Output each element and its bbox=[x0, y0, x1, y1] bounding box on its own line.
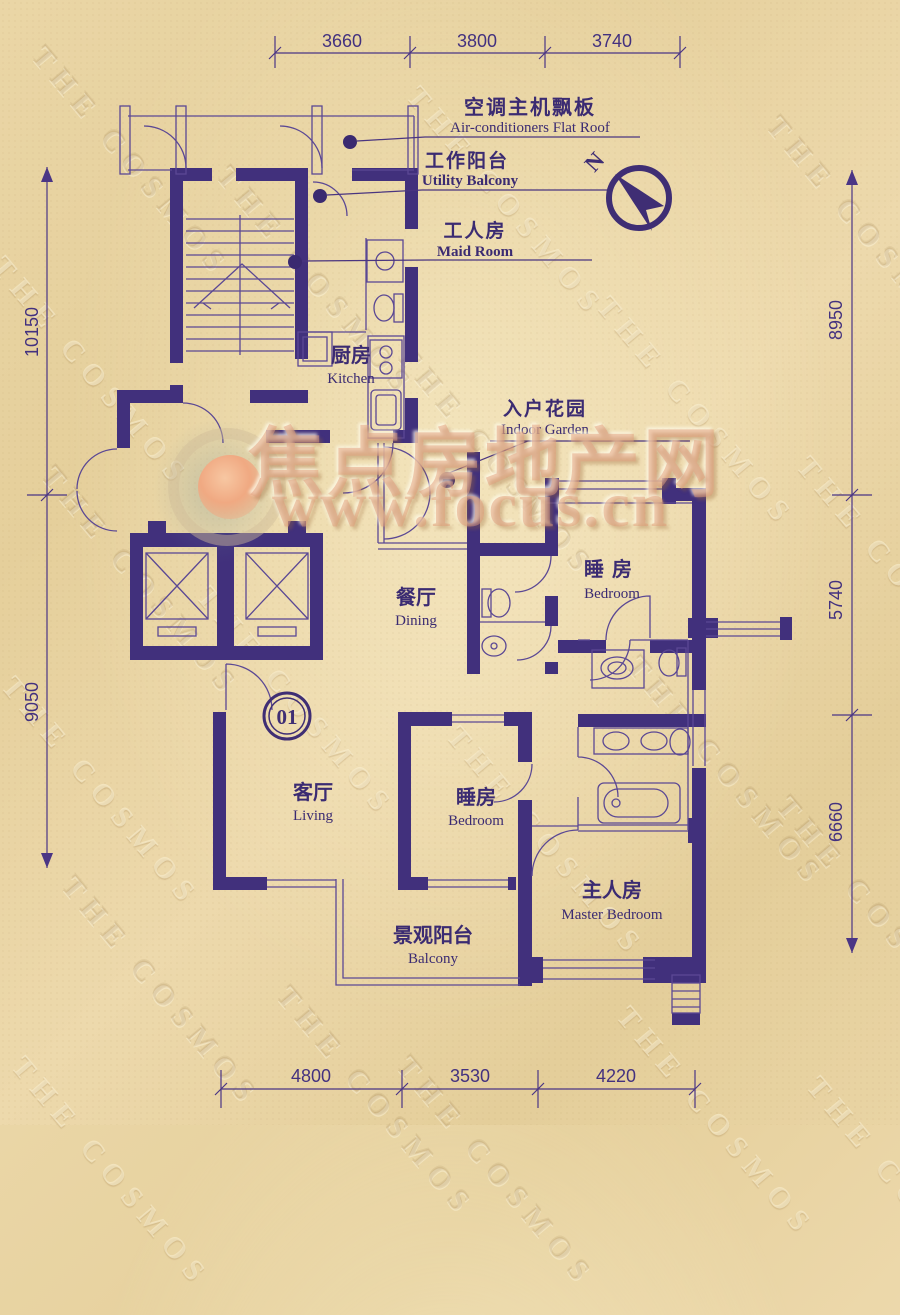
dim-top-2: 3800 bbox=[457, 31, 497, 51]
annotation-indoor-garden-en: Indoor Garden bbox=[501, 422, 589, 438]
unit-number-label: 01 bbox=[277, 705, 298, 729]
dim-top-3: 3740 bbox=[592, 31, 632, 51]
compass-north-label: N bbox=[580, 147, 610, 176]
annotation-maid-room-en: Maid Room bbox=[437, 244, 514, 260]
dimension-lines bbox=[27, 36, 872, 1108]
room-dining-en: Dining bbox=[395, 613, 437, 629]
room-bedroom1-zh: 睡房 bbox=[584, 557, 640, 581]
annotation-labels: 空调主机飘板 Air-conditioners Flat Roof 工作阳台 U… bbox=[422, 95, 610, 438]
floor-plan-page: { "page": { "background_text": "THE COSM… bbox=[0, 0, 900, 1125]
north-compass: N bbox=[580, 147, 669, 231]
dim-right-1: 8950 bbox=[826, 300, 846, 340]
room-balcony-zh: 景观阳台 bbox=[393, 923, 473, 947]
annotation-indoor-garden-zh: 入户花园 bbox=[503, 397, 587, 420]
dim-bottom-3: 4220 bbox=[596, 1066, 636, 1086]
dim-left-1: 10150 bbox=[22, 307, 42, 357]
annotation-ac-roof-en: Air-conditioners Flat Roof bbox=[450, 120, 610, 136]
room-living-zh: 客厅 bbox=[292, 780, 333, 804]
annotation-utility-balcony-zh: 工作阳台 bbox=[425, 149, 509, 172]
annotation-ac-roof-zh: 空调主机飘板 bbox=[464, 95, 596, 119]
dimension-arrows bbox=[41, 167, 858, 953]
floor-plan-drawing: 空调主机飘板 Air-conditioners Flat Roof 工作阳台 U… bbox=[0, 0, 900, 1125]
room-kitchen-zh: 厨房 bbox=[331, 343, 371, 367]
room-bedroom2-zh: 睡房 bbox=[456, 785, 496, 809]
unit-number-badge: 01 bbox=[264, 693, 310, 739]
room-master-bedroom-zh: 主人房 bbox=[582, 878, 642, 902]
dim-bottom-2: 3530 bbox=[450, 1066, 490, 1086]
dim-top-1: 3660 bbox=[322, 31, 362, 51]
room-bedroom1-en: Bedroom bbox=[584, 586, 640, 602]
dim-right-3: 6660 bbox=[826, 802, 846, 842]
dim-bottom-1: 4800 bbox=[291, 1066, 331, 1086]
room-master-bedroom-en: Master Bedroom bbox=[561, 907, 663, 923]
dim-right-2: 5740 bbox=[826, 580, 846, 620]
annotation-maid-room-zh: 工人房 bbox=[443, 219, 506, 242]
room-kitchen-en: Kitchen bbox=[327, 371, 375, 387]
annotation-utility-balcony-en: Utility Balcony bbox=[422, 173, 519, 189]
dim-left-2: 9050 bbox=[22, 682, 42, 722]
room-dining-zh: 餐厅 bbox=[396, 585, 436, 609]
walls bbox=[117, 168, 792, 1025]
room-balcony-en: Balcony bbox=[408, 951, 458, 967]
room-bedroom2-en: Bedroom bbox=[448, 813, 504, 829]
room-living-en: Living bbox=[293, 808, 333, 824]
